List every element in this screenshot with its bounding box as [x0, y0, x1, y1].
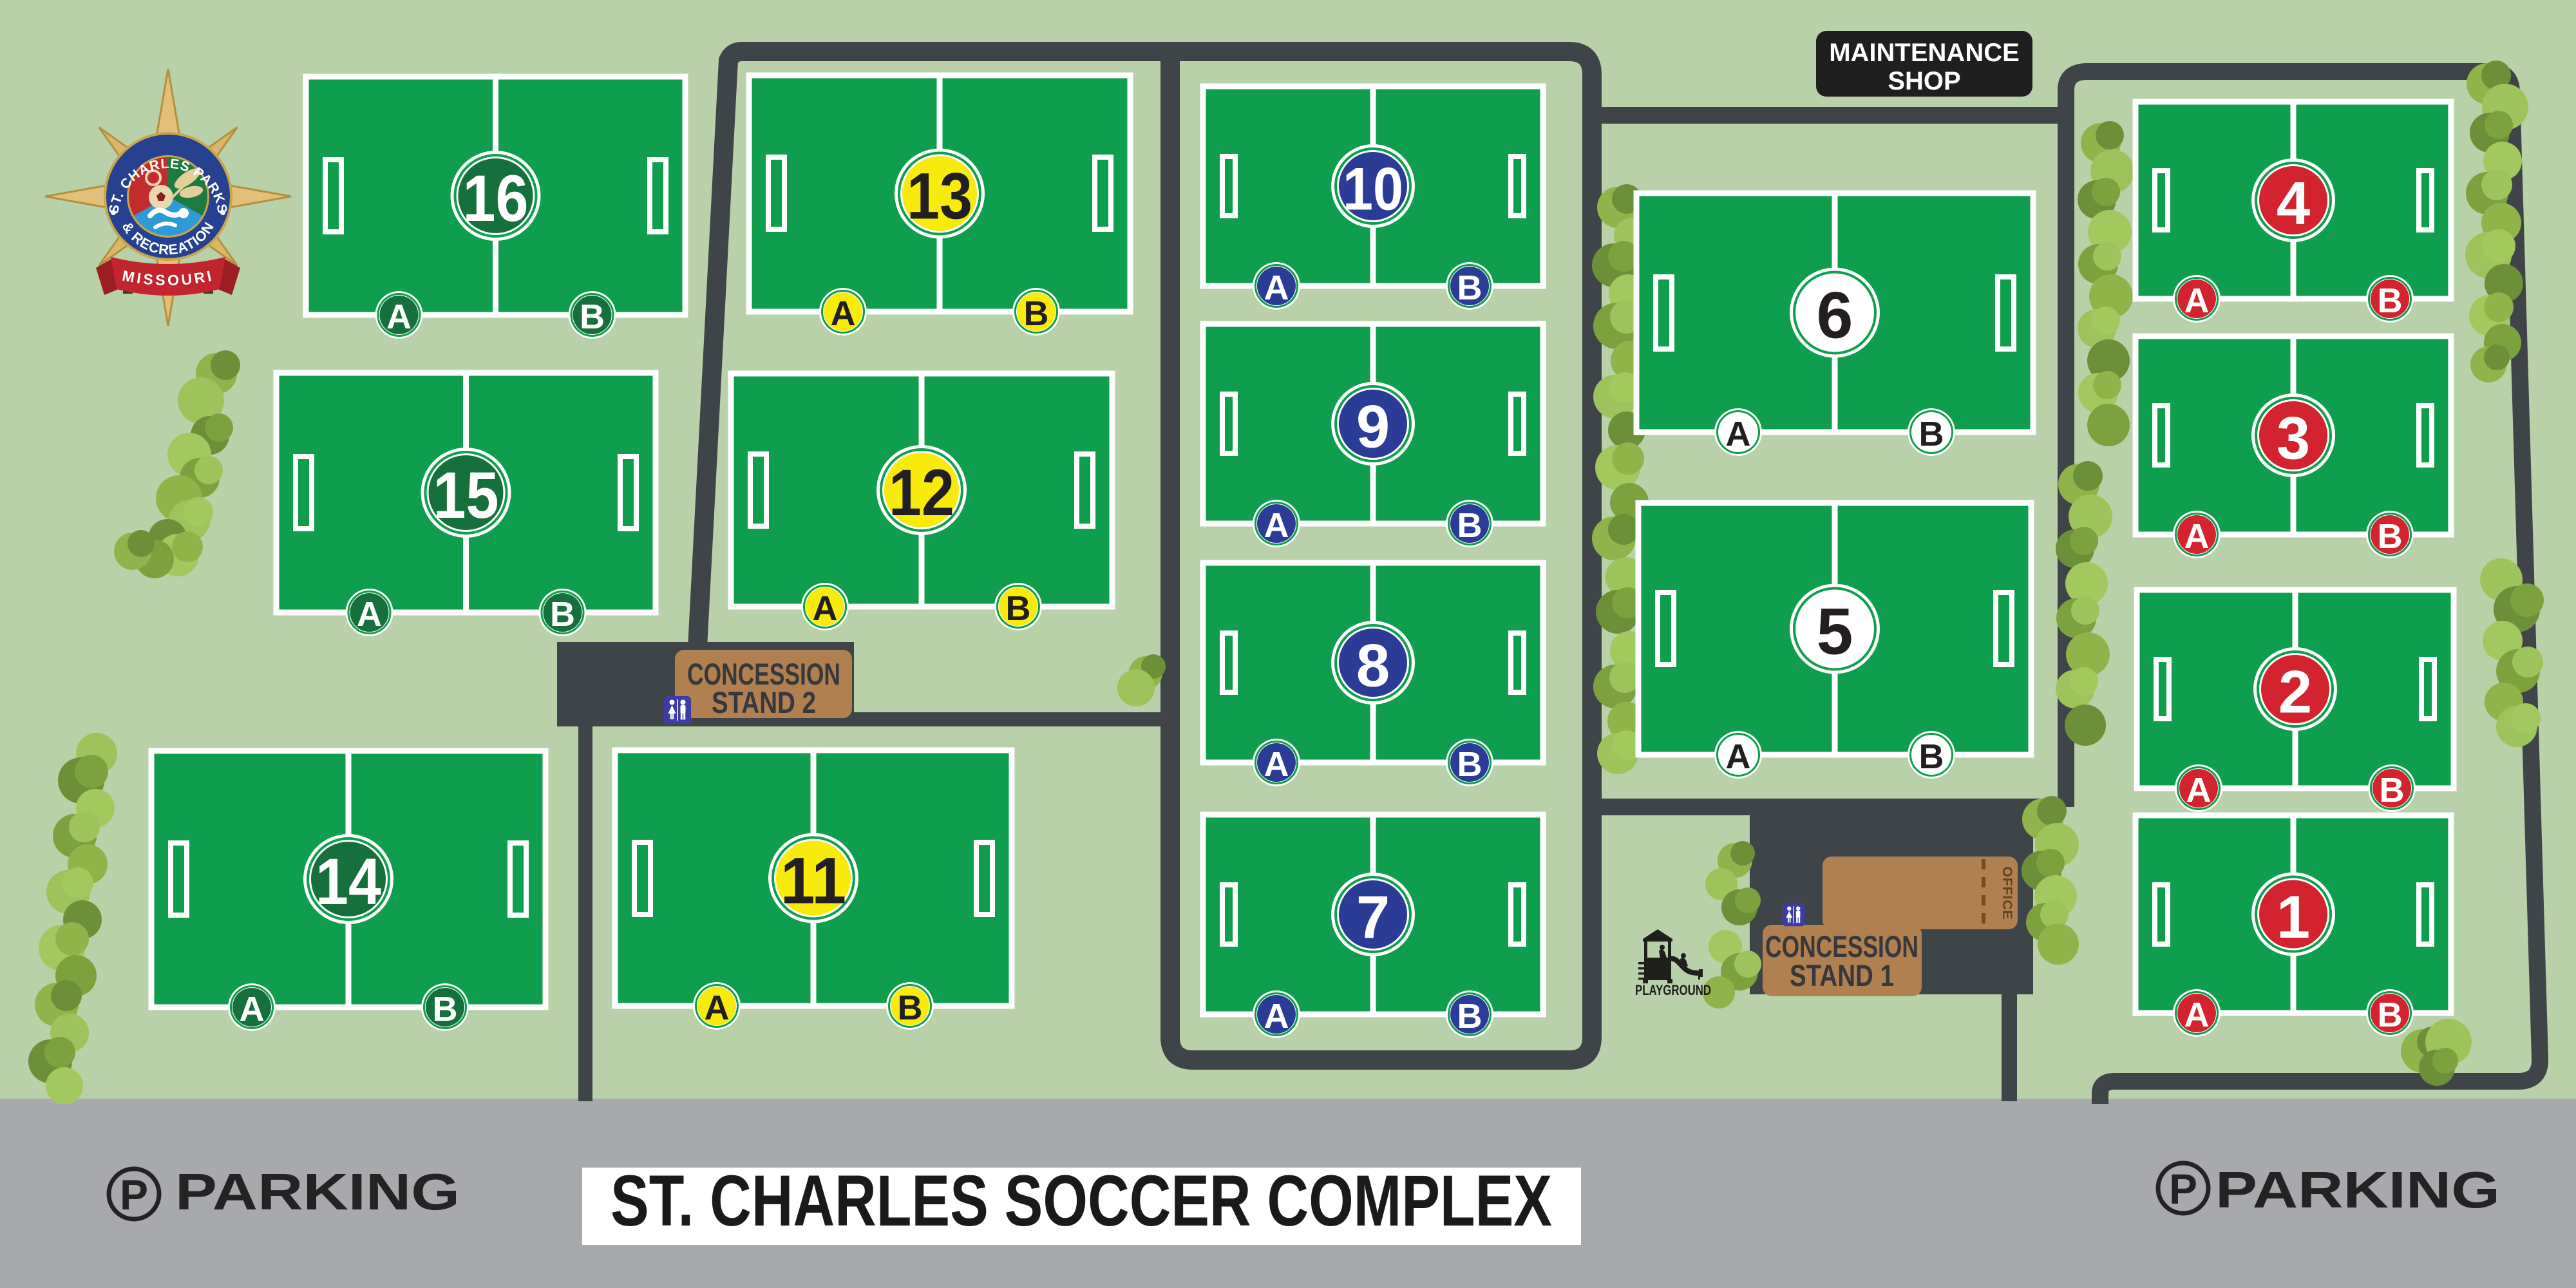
- svg-text:8: 8: [1356, 632, 1390, 699]
- svg-text:B: B: [2380, 771, 2405, 810]
- svg-text:PARKING: PARKING: [2215, 1161, 2500, 1218]
- svg-text:A: A: [831, 294, 856, 333]
- svg-text:P: P: [120, 1171, 148, 1218]
- svg-text:A: A: [705, 989, 730, 1027]
- svg-text:9: 9: [1356, 393, 1390, 460]
- svg-text:B: B: [1919, 737, 1944, 776]
- svg-text:A: A: [2184, 996, 2210, 1034]
- svg-text:A: A: [357, 595, 382, 634]
- svg-text:B: B: [1006, 589, 1031, 628]
- svg-text:A: A: [813, 589, 838, 628]
- svg-text:B: B: [433, 990, 458, 1028]
- svg-text:B: B: [1024, 294, 1049, 333]
- svg-text:STAND 1: STAND 1: [1790, 958, 1894, 992]
- svg-text:1: 1: [2277, 883, 2310, 951]
- svg-text:ST. CHARLES SOCCER COMPLEX: ST. CHARLES SOCCER COMPLEX: [611, 1160, 1552, 1241]
- svg-text:A: A: [1264, 745, 1289, 784]
- svg-text:3: 3: [2277, 404, 2310, 472]
- svg-text:MAINTENANCE: MAINTENANCE: [1829, 39, 2020, 67]
- svg-text:B: B: [1457, 997, 1482, 1036]
- svg-text:A: A: [1726, 737, 1751, 776]
- svg-text:16: 16: [463, 162, 529, 235]
- svg-text:12: 12: [889, 456, 954, 529]
- svg-text:B: B: [580, 298, 605, 336]
- svg-text:B: B: [1457, 506, 1482, 545]
- svg-text:10: 10: [1343, 155, 1403, 223]
- svg-text:B: B: [2378, 996, 2403, 1034]
- svg-text:PARKING: PARKING: [175, 1163, 460, 1220]
- svg-text:A: A: [2184, 517, 2210, 556]
- svg-text:STAND 2: STAND 2: [712, 685, 816, 719]
- svg-text:SHOP: SHOP: [1888, 67, 1960, 95]
- svg-text:B: B: [1919, 415, 1944, 453]
- svg-text:4: 4: [2277, 169, 2310, 237]
- svg-text:A: A: [1264, 506, 1289, 545]
- svg-text:A: A: [1264, 269, 1289, 307]
- svg-text:B: B: [550, 595, 575, 634]
- svg-text:A: A: [1264, 997, 1289, 1036]
- svg-text:11: 11: [781, 844, 846, 918]
- svg-text:15: 15: [433, 459, 499, 532]
- svg-text:B: B: [1457, 269, 1482, 307]
- svg-text:A: A: [2184, 281, 2210, 320]
- svg-text:B: B: [898, 989, 923, 1027]
- svg-text:A: A: [386, 298, 412, 336]
- svg-text:6: 6: [1817, 279, 1853, 352]
- svg-text:B: B: [2378, 517, 2403, 556]
- svg-text:B: B: [2378, 281, 2403, 320]
- svg-text:14: 14: [316, 845, 381, 918]
- svg-text:7: 7: [1356, 884, 1390, 951]
- svg-text:B: B: [1457, 745, 1482, 784]
- svg-text:OFFICE: OFFICE: [2000, 867, 2014, 920]
- svg-text:13: 13: [907, 160, 972, 233]
- svg-text:A: A: [1726, 415, 1751, 453]
- svg-text:2: 2: [2278, 658, 2312, 726]
- svg-text:5: 5: [1817, 595, 1853, 668]
- svg-text:P: P: [2169, 1165, 2197, 1213]
- svg-text:A: A: [240, 990, 265, 1028]
- svg-text:A: A: [2186, 771, 2211, 810]
- svg-text:PLAYGROUND: PLAYGROUND: [1635, 982, 1711, 998]
